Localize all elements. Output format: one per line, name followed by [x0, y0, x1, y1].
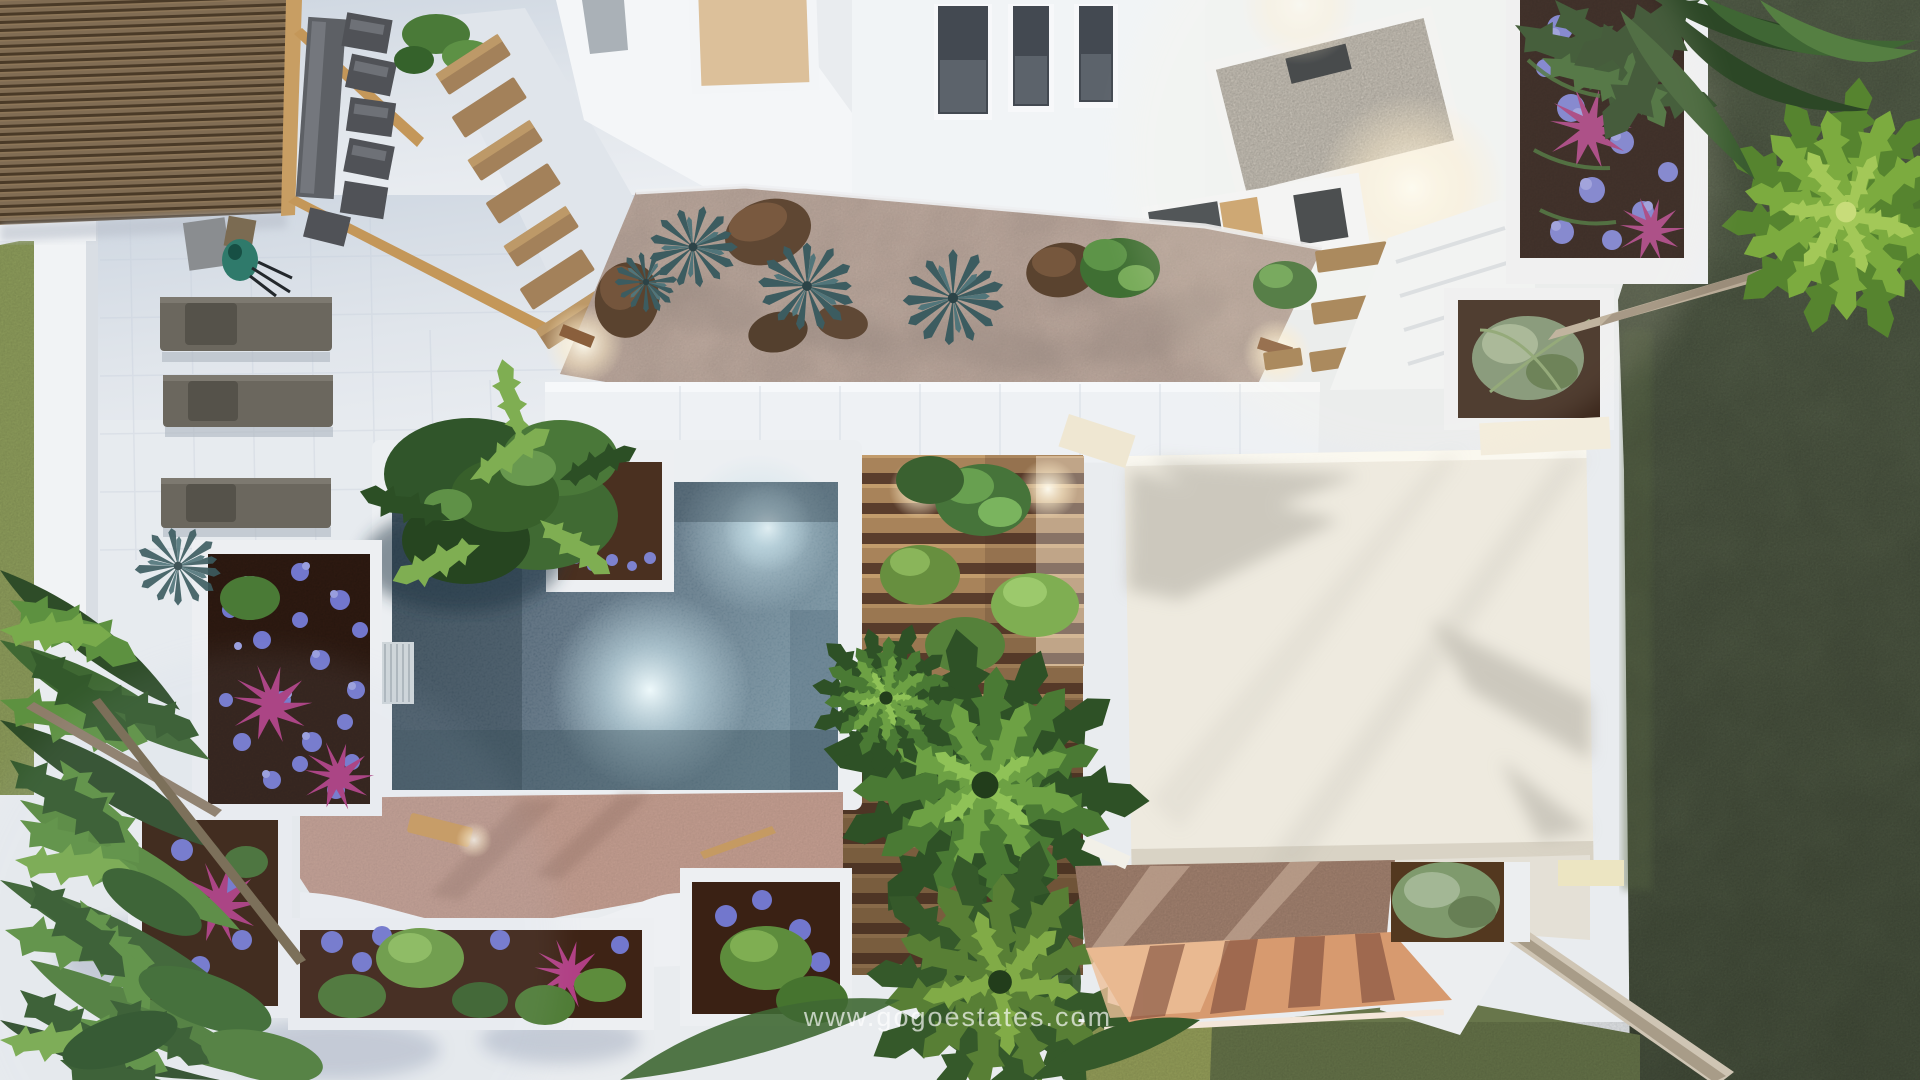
- svg-text:www.gogoestates.com: www.gogoestates.com: [803, 1002, 1112, 1032]
